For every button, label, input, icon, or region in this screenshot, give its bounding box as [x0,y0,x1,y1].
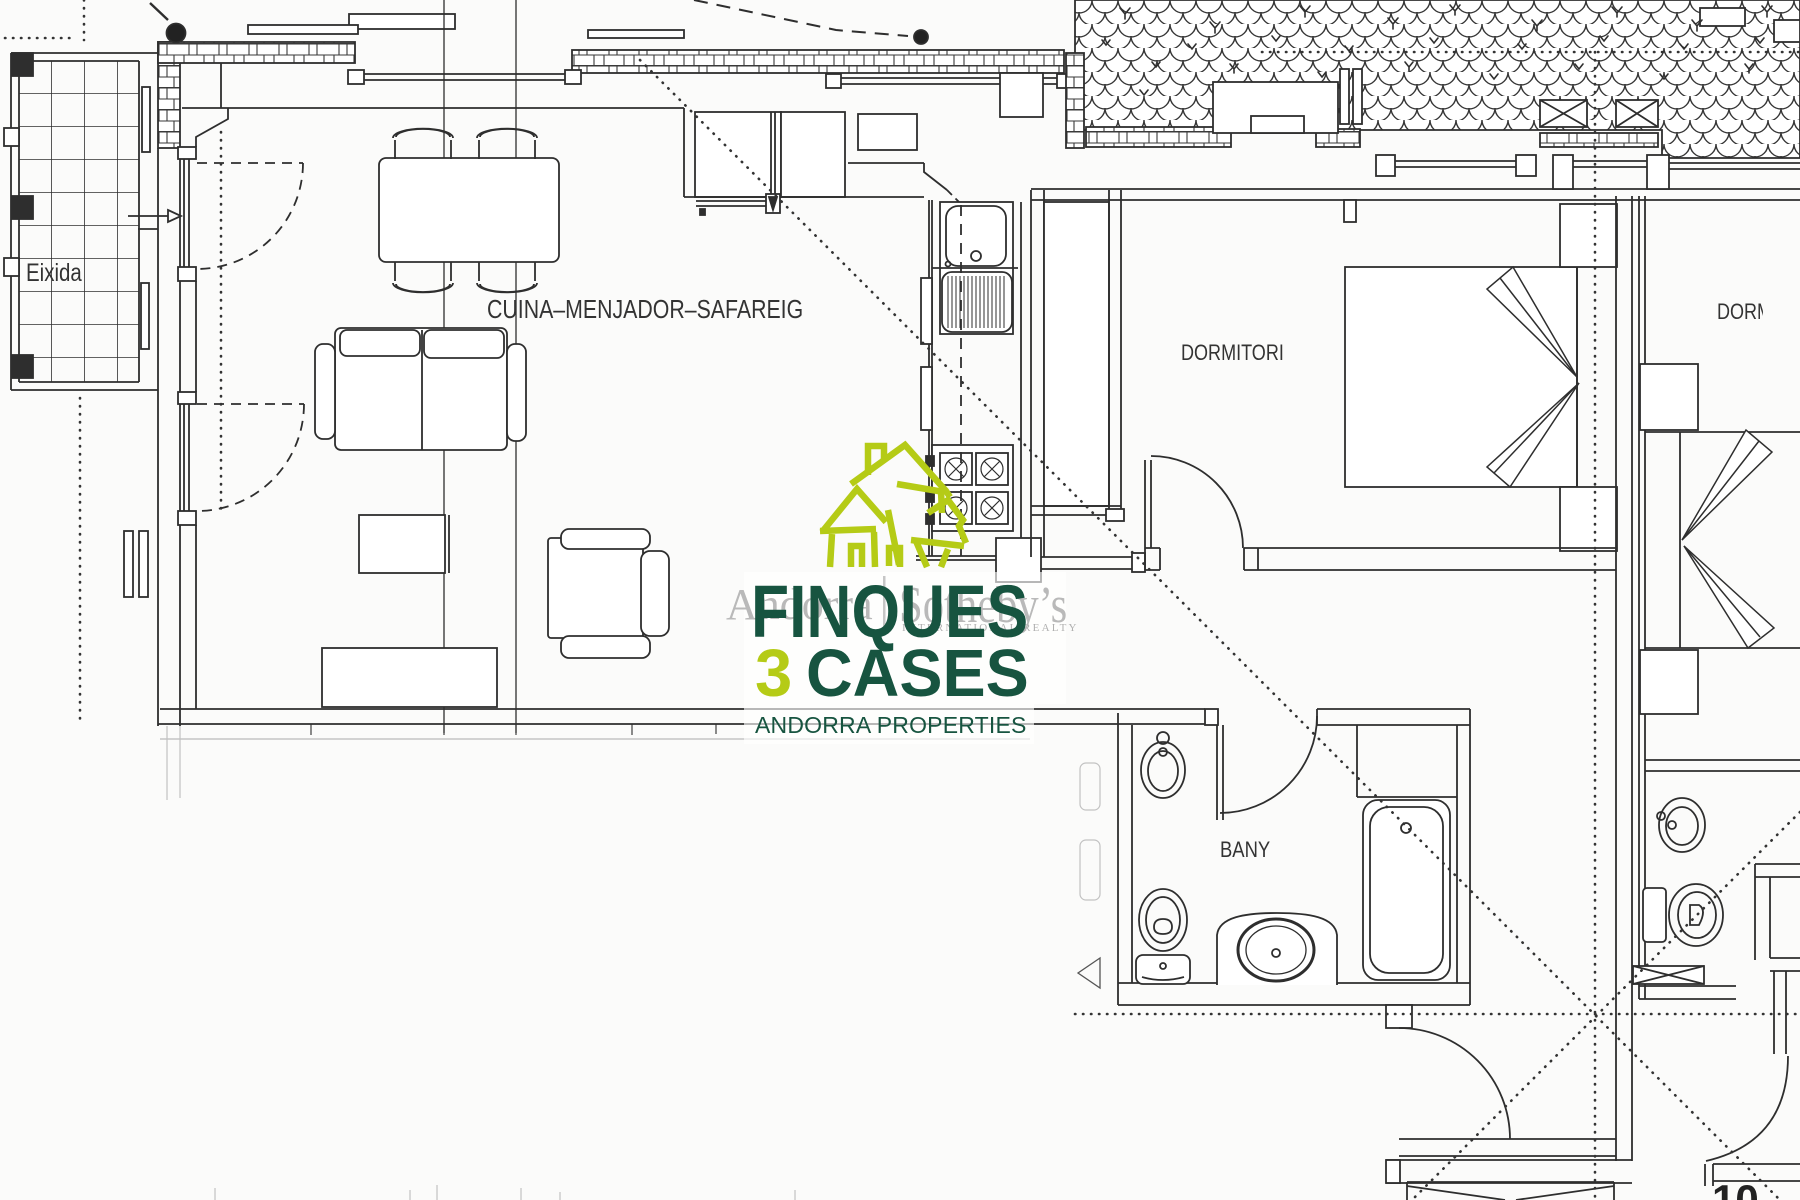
svg-text:ANDORRA PROPERTIES: ANDORRA PROPERTIES [755,712,1027,738]
svg-text:CUINA–MENJADOR–SAFAREIG: CUINA–MENJADOR–SAFAREIG [487,295,803,325]
svg-text:BANY: BANY [1220,837,1270,862]
svg-text:3: 3 [755,636,792,711]
svg-text:CASES: CASES [806,635,1029,710]
svg-text:DORMITORI: DORMITORI [1181,341,1284,365]
svg-text:Eixida: Eixida [26,258,82,286]
